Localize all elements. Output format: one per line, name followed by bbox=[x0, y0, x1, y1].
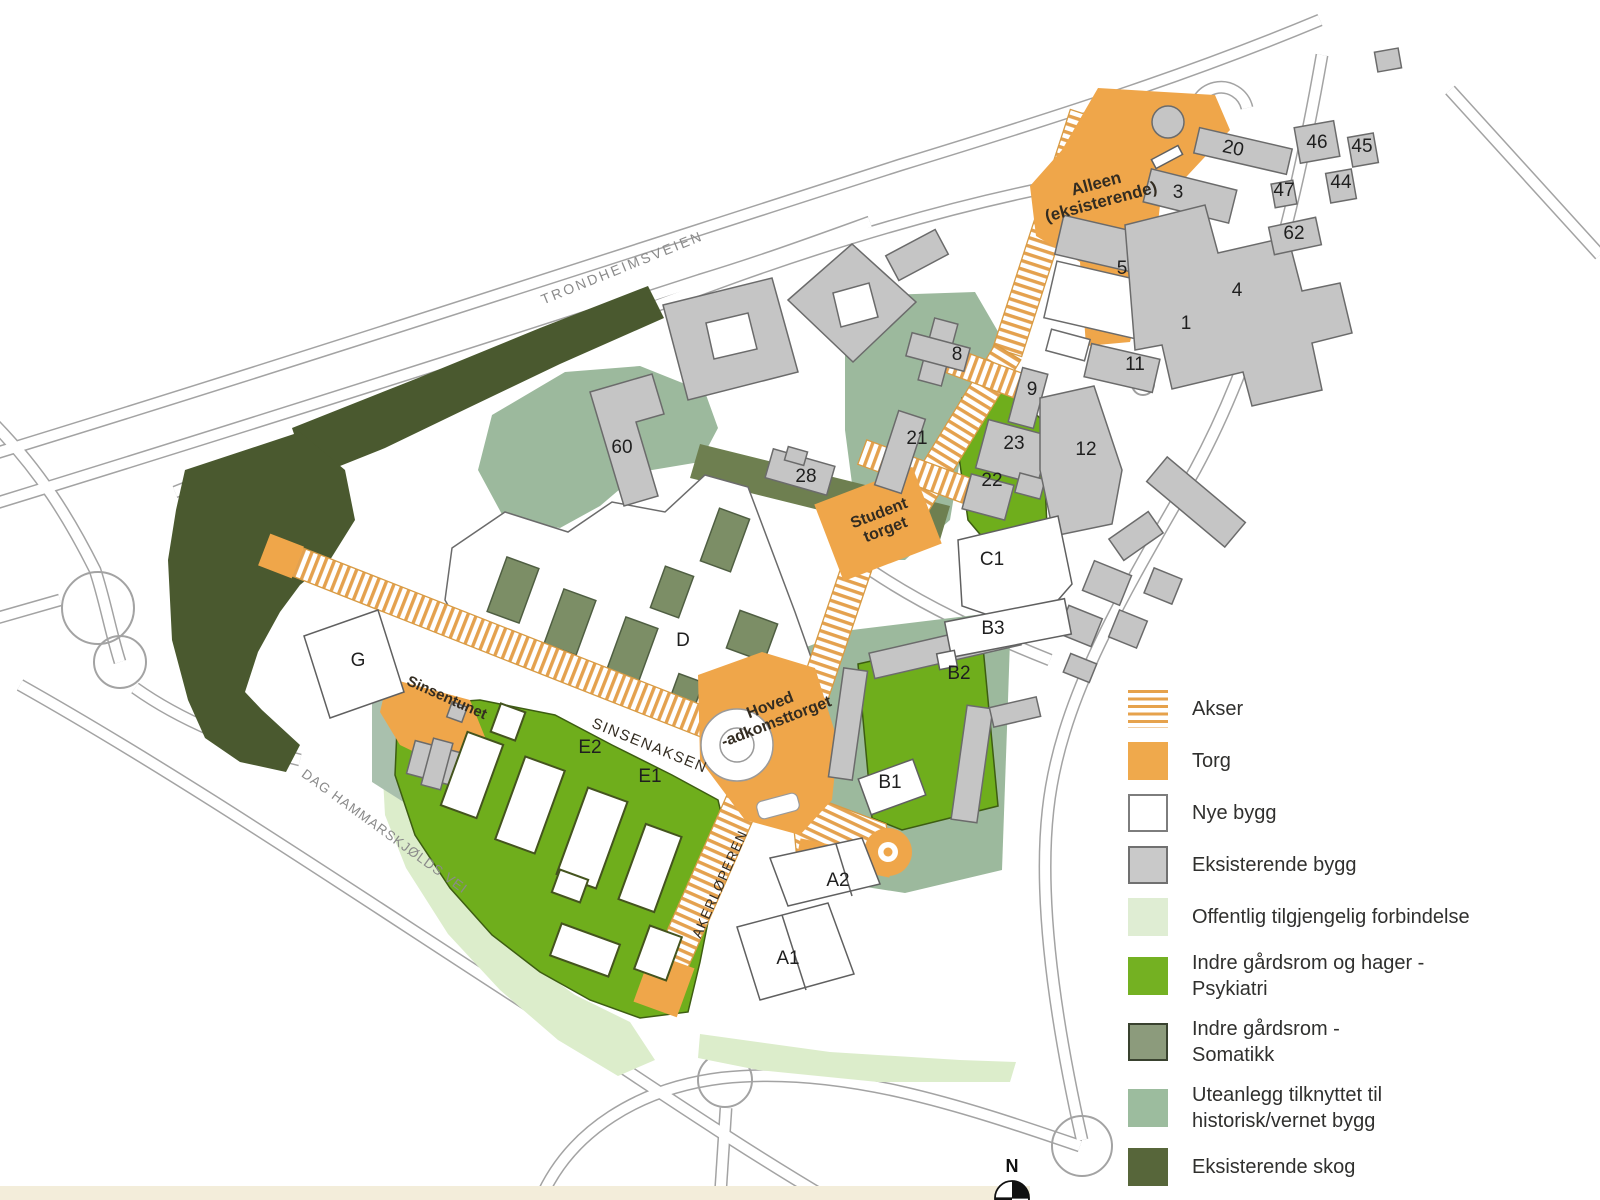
building-11 bbox=[1084, 344, 1160, 393]
building-label-a1: A1 bbox=[776, 948, 799, 969]
legend-label-indre-gardsrom-somatikk: Indre gårdsrom - Somatikk bbox=[1192, 1016, 1340, 1068]
building-label-28: 28 bbox=[795, 466, 816, 487]
building-label-8: 8 bbox=[952, 344, 963, 365]
building-cluster-3 bbox=[1144, 568, 1182, 604]
building-label-45: 45 bbox=[1351, 136, 1372, 157]
legend-label-uteanlegg-historisk: Uteanlegg tilknyttet til historisk/verne… bbox=[1192, 1082, 1382, 1134]
building-label-21: 21 bbox=[906, 428, 927, 449]
building-label-b3: B3 bbox=[981, 618, 1004, 639]
building-label-44: 44 bbox=[1330, 172, 1352, 193]
building-label-d: D bbox=[676, 630, 690, 651]
legend-item-eksisterende-bygg: Eksisterende bygg bbox=[1128, 846, 1578, 884]
building-label-12: 12 bbox=[1075, 439, 1096, 460]
building-A2 bbox=[770, 838, 880, 906]
building-label-60: 60 bbox=[611, 437, 632, 458]
legend-swatch-torg bbox=[1128, 742, 1168, 780]
legend-item-indre-gardsrom-psykiatri: Indre gårdsrom og hager - Psykiatri bbox=[1128, 950, 1578, 1002]
building-label-c1: C1 bbox=[980, 549, 1004, 570]
legend-label-eksisterende-skog: Eksisterende skog bbox=[1192, 1154, 1355, 1180]
building-label-46: 46 bbox=[1306, 132, 1327, 153]
legend-swatch-indre-gardsrom-somatikk bbox=[1128, 1023, 1168, 1061]
north-label: N bbox=[1006, 1156, 1019, 1176]
building-label-11: 11 bbox=[1125, 354, 1145, 375]
building-small-mid bbox=[886, 229, 949, 280]
site-plan-page: N 4645444762203541118921232212C1B3B2B160… bbox=[0, 0, 1600, 1200]
legend-label-indre-gardsrom-psykiatri: Indre gårdsrom og hager - Psykiatri bbox=[1192, 950, 1424, 1002]
legend-label-nye-bygg: Nye bygg bbox=[1192, 800, 1277, 826]
building-label-b2: B2 bbox=[947, 663, 970, 684]
building-label-1: 1 bbox=[1181, 313, 1192, 334]
building-label-9: 9 bbox=[1027, 379, 1038, 400]
legend-swatch-akser bbox=[1128, 690, 1168, 728]
legend-item-uteanlegg-historisk: Uteanlegg tilknyttet til historisk/verne… bbox=[1128, 1082, 1578, 1134]
building-label-62: 62 bbox=[1283, 223, 1304, 244]
legend-label-torg: Torg bbox=[1192, 748, 1231, 774]
building-label-b1: B1 bbox=[878, 772, 901, 793]
legend-swatch-eksisterende-bygg bbox=[1128, 846, 1168, 884]
legend-item-indre-gardsrom-somatikk: Indre gårdsrom - Somatikk bbox=[1128, 1016, 1578, 1068]
legend-label-eksisterende-bygg: Eksisterende bygg bbox=[1192, 852, 1357, 878]
building-label-4: 4 bbox=[1232, 280, 1243, 301]
building-white-sage bbox=[1046, 329, 1090, 361]
legend-item-torg: Torg bbox=[1128, 742, 1578, 780]
north-symbol: N bbox=[995, 1156, 1029, 1200]
building-label-5: 5 bbox=[1117, 258, 1128, 279]
legend-item-offentlig-tilgjengelig-forbindelse: Offentlig tilgjengelig forbindelse bbox=[1128, 898, 1578, 936]
building-label-e1: E1 bbox=[638, 766, 661, 787]
building-12 bbox=[1040, 386, 1122, 536]
building-cluster-1 bbox=[1109, 512, 1163, 561]
building-label-e2: E2 bbox=[578, 737, 601, 758]
building-label-g: G bbox=[351, 650, 366, 671]
legend-swatch-eksisterende-skog bbox=[1128, 1148, 1168, 1186]
legend-swatch-uteanlegg-historisk bbox=[1128, 1089, 1168, 1127]
building-label-3: 3 bbox=[1173, 182, 1184, 203]
legend-swatch-offentlig-tilgjengelig-forbindelse bbox=[1128, 898, 1168, 936]
building-small-ne bbox=[1374, 48, 1401, 72]
legend-item-eksisterende-skog: Eksisterende skog bbox=[1128, 1148, 1578, 1186]
legend-label-offentlig-tilgjengelig-forbindelse: Offentlig tilgjengelig forbindelse bbox=[1192, 904, 1470, 930]
legend-item-akser: Akser bbox=[1128, 690, 1578, 728]
building-label-47: 47 bbox=[1273, 180, 1294, 201]
building-label-a2: A2 bbox=[826, 870, 849, 891]
legend-label-akser: Akser bbox=[1192, 696, 1243, 722]
building-label-20: 20 bbox=[1221, 136, 1246, 161]
legend: AkserTorgNye byggEksisterende byggOffent… bbox=[1128, 690, 1578, 1186]
legend-item-nye-bygg: Nye bygg bbox=[1128, 794, 1578, 832]
legend-swatch-indre-gardsrom-psykiatri bbox=[1128, 957, 1168, 995]
legend-swatch-nye-bygg bbox=[1128, 794, 1168, 832]
building-label-23: 23 bbox=[1003, 433, 1024, 454]
building-round bbox=[1152, 106, 1184, 138]
figure-bottom-strip bbox=[0, 1186, 1030, 1200]
building-label-22: 22 bbox=[981, 470, 1002, 491]
